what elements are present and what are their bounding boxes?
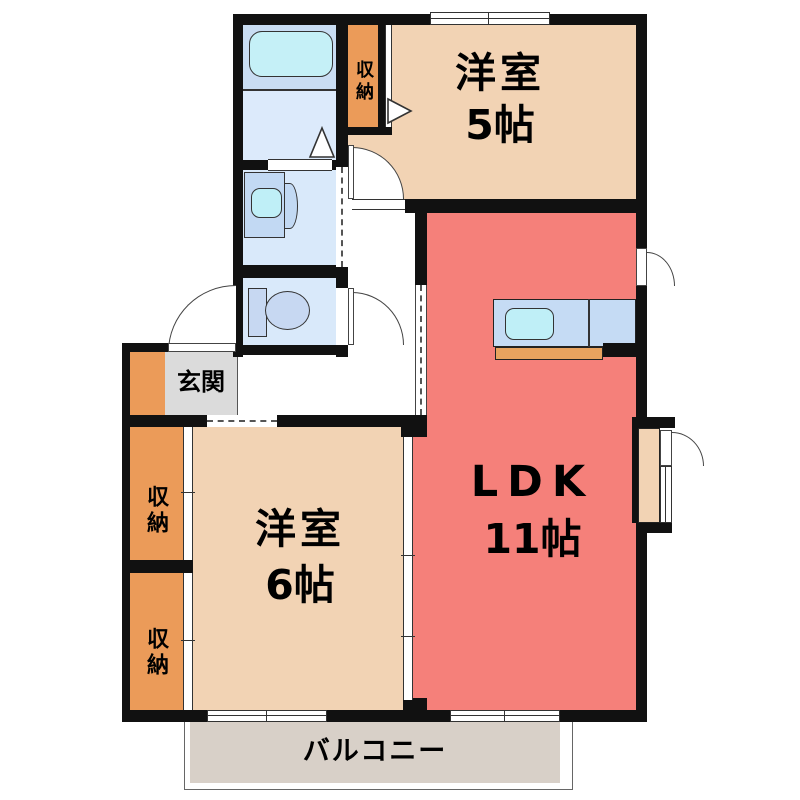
wall-washroom-toilet [243, 265, 336, 278]
label-entrance: 玄関 [163, 370, 239, 398]
floor-plan: 洋室 5帖 LDK 11帖 洋室 6帖 玄関 バルコニー 収納 収納 収納 [0, 0, 800, 800]
label-closet-lower: 収納 [143, 608, 171, 698]
wall-storage-bottom [638, 523, 672, 533]
wall-closet-bath-right [378, 14, 385, 135]
kitchen-counter-divider [588, 299, 590, 347]
label-western5-name: 洋室 [410, 52, 590, 104]
wall-western5-bottom [405, 199, 647, 213]
wall-right-lower [636, 523, 647, 715]
door-leaf-entrance [168, 343, 236, 352]
sliding-door-washroom-dash [341, 167, 343, 267]
door-triangle-bathroom [302, 124, 338, 160]
wall-right-mid [636, 286, 647, 428]
room-ldk-west [413, 437, 427, 698]
door-leaf-toilet [348, 288, 354, 345]
kitchen-counter-front [495, 347, 603, 360]
partition-tick-1 [401, 555, 415, 556]
door-gap-bathroom [268, 159, 332, 171]
kitchen-sink [505, 308, 554, 340]
wall-top-left [233, 14, 430, 25]
wall-top-right [550, 14, 647, 25]
wall-bottom-3 [560, 710, 647, 722]
wall-western6-top-1 [122, 415, 207, 427]
door-arc-storage [672, 432, 704, 466]
door-leaf-western5 [348, 145, 354, 199]
label-ldk-size: 11帖 [440, 518, 625, 570]
label-ldk-name: LDK [440, 460, 625, 512]
door-leaf-ldk-right [636, 248, 647, 286]
wall-ldk-left [415, 213, 427, 285]
wall-left [122, 343, 130, 722]
wall-storage-top [632, 417, 675, 428]
door-leaf-storage [660, 430, 672, 466]
label-western6-name: 洋室 [205, 508, 395, 564]
partition-western6-ldk [403, 437, 413, 700]
label-closet-bath: 収納 [351, 42, 376, 122]
door-arc-toilet [352, 292, 404, 345]
wall-right-storage [632, 428, 638, 523]
sliding-door-closet-lower-tick [181, 640, 195, 641]
sliding-door-ldk-dash [420, 285, 422, 415]
partition-tick-2 [401, 636, 415, 637]
label-closet-upper: 収納 [143, 466, 171, 556]
sliding-door-western6-dash [207, 420, 277, 422]
window-storage-line [665, 466, 666, 523]
window-ldk-tick [504, 710, 505, 722]
window-western6-tick [266, 710, 267, 722]
door-threshold-western5 [352, 199, 405, 210]
door-arc-entrance [168, 285, 236, 352]
wall-western6-top-2 [277, 415, 415, 427]
window-western5-line [430, 18, 550, 19]
wall-closet-bath-bottom [348, 127, 392, 135]
sliding-door-closet-lower [183, 573, 193, 710]
door-triangle-closet-bath [386, 97, 413, 125]
bathroom-divider-line [243, 89, 336, 91]
sliding-door-closet-upper-tick [181, 492, 195, 493]
wall-entrance-top [122, 343, 168, 352]
washbasin-sink [251, 188, 282, 218]
label-western5-size: 5帖 [410, 104, 590, 156]
entrance-shoe-cabinet [128, 352, 165, 415]
label-balcony: バルコニー [230, 738, 520, 768]
label-western6-size: 6帖 [205, 564, 395, 620]
exterior-storage [638, 428, 660, 523]
window-western5-tick [488, 13, 489, 24]
wall-bottom-1 [122, 710, 207, 722]
wall-bath-right-2 [336, 267, 348, 288]
wall-toilet-bottom [233, 345, 348, 355]
wall-bottom-2 [327, 710, 450, 722]
door-arc-ldk-right [647, 252, 675, 286]
wall-closet-divider [122, 560, 193, 573]
bathtub [249, 31, 333, 77]
sliding-door-closet-upper [183, 427, 193, 560]
toilet-bowl [265, 291, 310, 330]
